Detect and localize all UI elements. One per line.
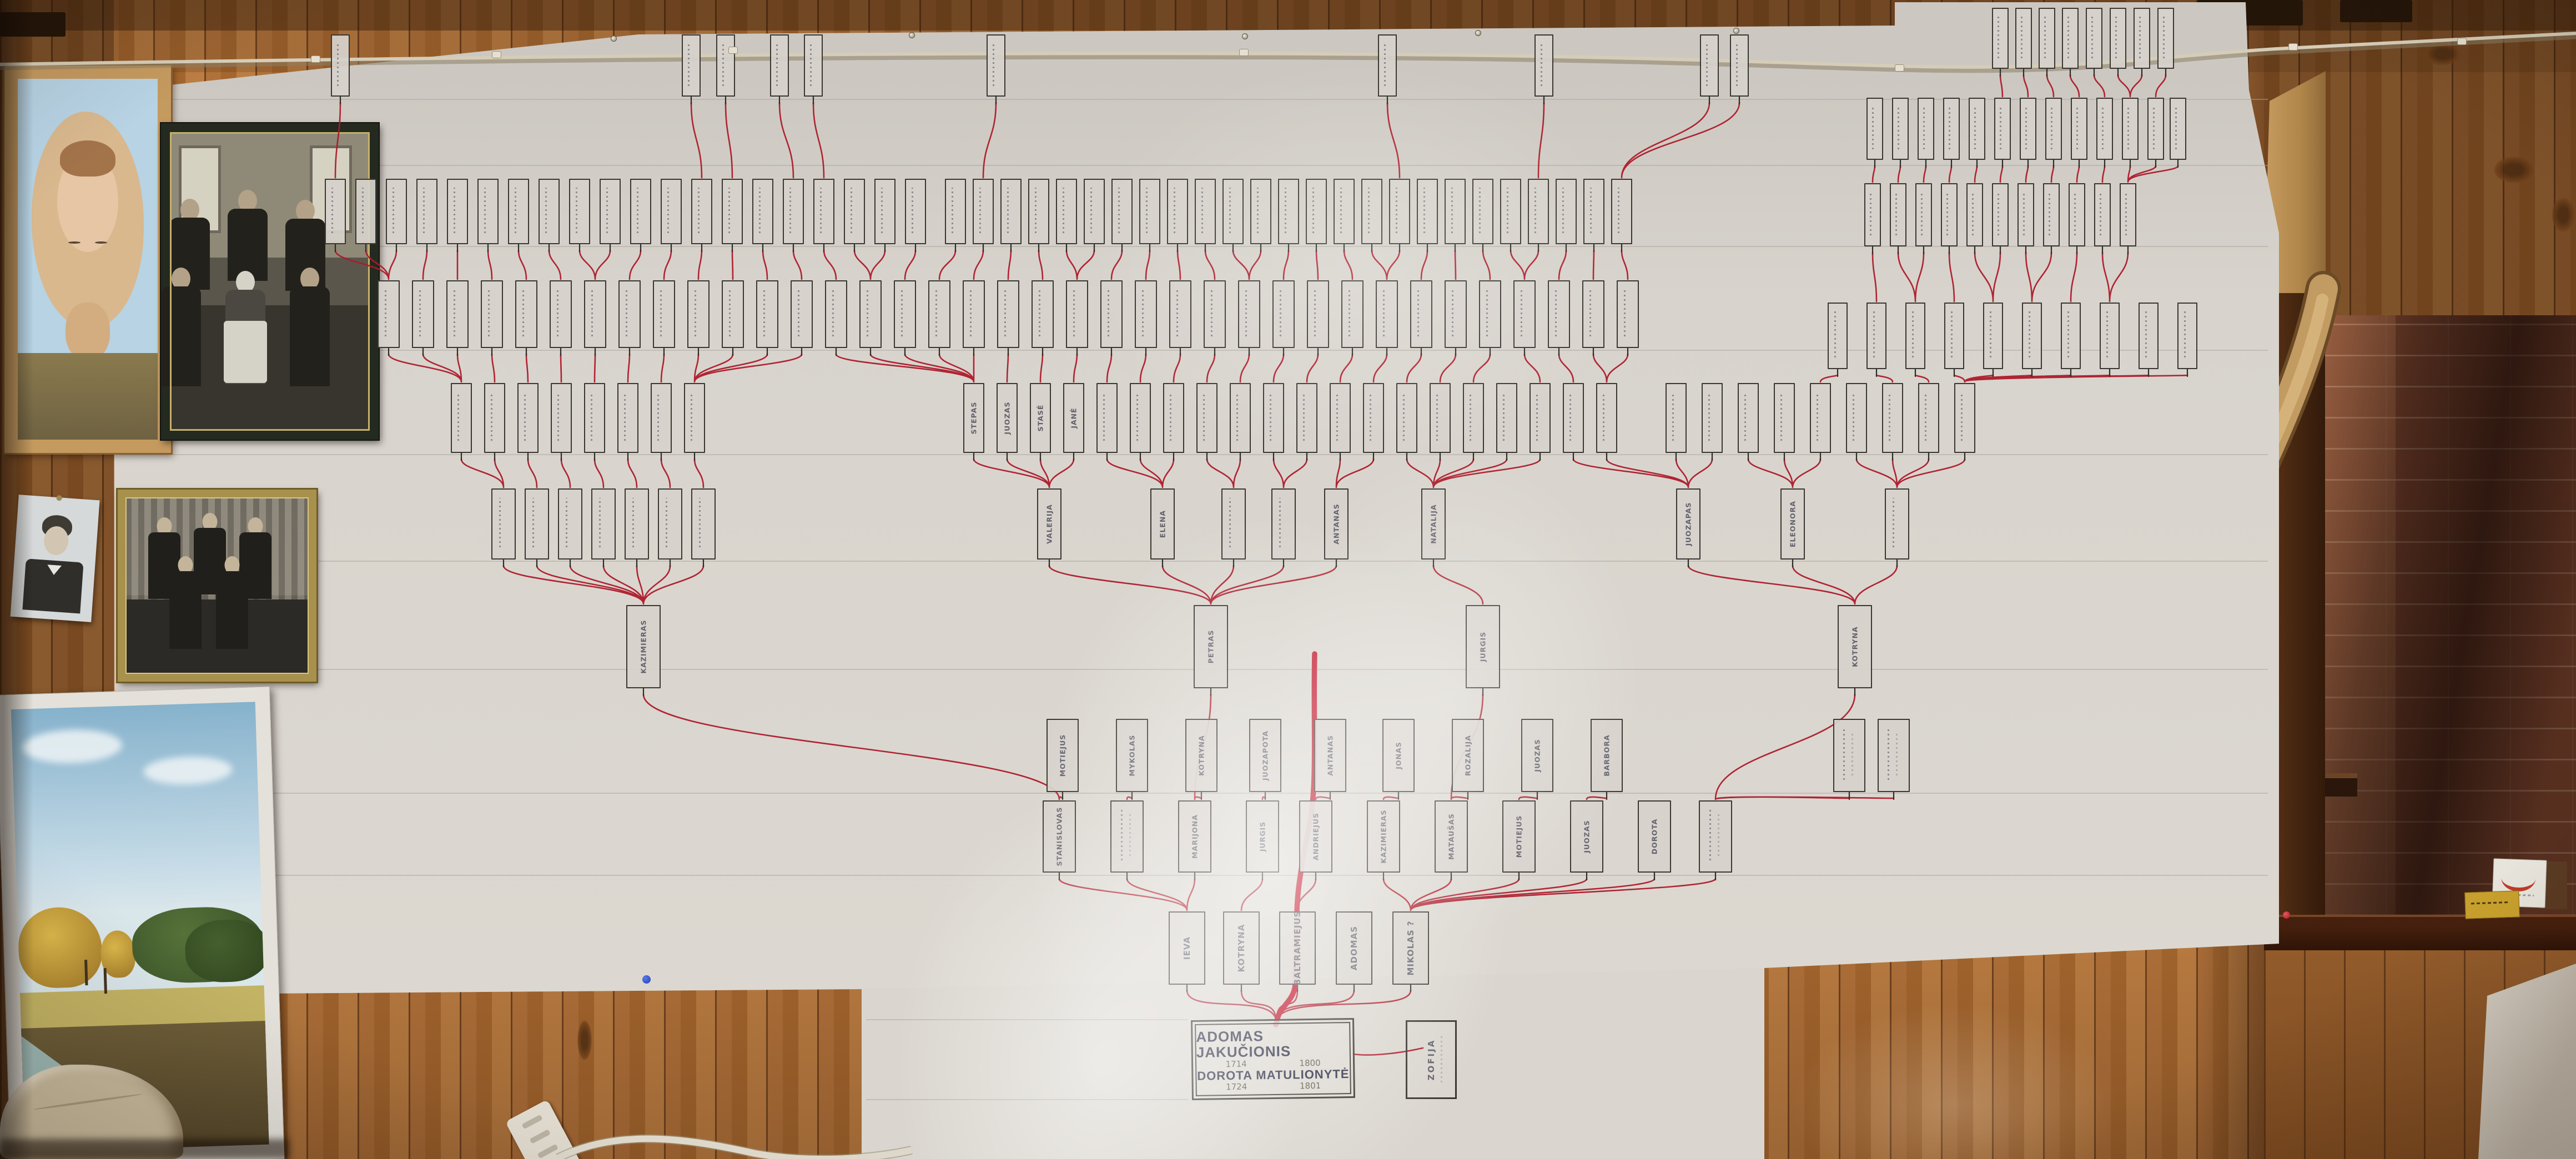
- person-box: [2039, 8, 2055, 69]
- person-box: [331, 34, 350, 97]
- person-box: [2134, 8, 2150, 69]
- person-box: [1966, 183, 1983, 246]
- person-box: [1969, 98, 1985, 160]
- person-box: [2015, 8, 2032, 69]
- person-box: [658, 488, 682, 560]
- person-box: [1341, 280, 1364, 348]
- person-box: [859, 280, 882, 348]
- person-box: [1130, 383, 1151, 453]
- person-box: [691, 488, 716, 560]
- person-box: [1163, 383, 1184, 453]
- person-box: [1885, 488, 1909, 560]
- person-box: [756, 280, 778, 348]
- person-box: [1110, 800, 1144, 873]
- person-box: [1666, 383, 1687, 453]
- person-box: ROZALIJA: [1452, 719, 1484, 792]
- person-box: [2094, 183, 2111, 246]
- person-box: [1890, 183, 1906, 246]
- person-box: JURGIS: [1246, 800, 1279, 873]
- cord-clip: [1895, 64, 1904, 72]
- metal-pin: [1242, 33, 1248, 39]
- blue-pin: [642, 975, 651, 984]
- person-box: [1230, 383, 1251, 453]
- person-box: [1306, 179, 1327, 244]
- person-box: JANĖ: [1063, 383, 1084, 453]
- person-box: [1135, 280, 1157, 348]
- person-box: [1892, 98, 1909, 160]
- person-box: [1221, 488, 1246, 560]
- room-scene: STEPASJUOZASSTASĖJANĖVALERIJAELENAANTANA…: [0, 0, 2576, 1159]
- framed-group-photo: [118, 490, 316, 682]
- person-box: [1330, 383, 1351, 453]
- person-box: [1954, 383, 1975, 453]
- person-box: [447, 179, 468, 244]
- red-pin: [2283, 911, 2290, 919]
- pencil-rule-line: [119, 561, 2268, 562]
- person-box: [1534, 34, 1553, 97]
- person-box: [1500, 179, 1521, 244]
- person-box: KOTRYNA: [1223, 911, 1260, 985]
- person-box: [1272, 280, 1295, 348]
- person-box: [825, 280, 847, 348]
- person-box: [1084, 179, 1105, 244]
- person-box: [945, 179, 966, 244]
- person-box: [1563, 383, 1584, 453]
- person-box: [2100, 303, 2120, 369]
- person-box: [1513, 280, 1536, 348]
- person-box: [1882, 383, 1903, 453]
- person-box: [2017, 183, 2034, 246]
- plank-knot: [2494, 157, 2534, 183]
- person-box: [325, 179, 346, 244]
- person-box: [1774, 383, 1795, 453]
- person-box: [1307, 280, 1329, 348]
- person-box: [2170, 98, 2186, 160]
- person-box: [1389, 179, 1410, 244]
- person-box: JUOZAS: [997, 383, 1018, 453]
- person-box: JURGIS: [1466, 605, 1500, 688]
- person-box: [973, 179, 994, 244]
- person-box: KAZIMIERAS: [1367, 800, 1400, 873]
- person-box: [1111, 179, 1133, 244]
- person-box: NATALIJA: [1421, 488, 1446, 560]
- person-box: [1994, 98, 2011, 160]
- person-box: [2043, 183, 2060, 246]
- person-box: JUOZAPAS: [1676, 488, 1700, 560]
- person-box: [1617, 280, 1639, 348]
- metal-pin: [611, 36, 617, 42]
- person-box: [551, 383, 572, 453]
- unframed-portrait-photo: [11, 495, 100, 622]
- person-box: BARBORA: [1591, 719, 1623, 792]
- metal-pin: [1475, 30, 1481, 36]
- person-box: JONAS: [1382, 719, 1415, 792]
- person-box: [1479, 280, 1501, 348]
- zofija-side-box: ZOFIJA: [1406, 1020, 1457, 1099]
- person-box: [1918, 98, 1934, 160]
- person-box: [2122, 98, 2139, 160]
- person-box: [1864, 183, 1881, 246]
- root-wife-name: DOROTA MATULIONYTĖ: [1197, 1067, 1350, 1083]
- person-box: [1846, 383, 1867, 453]
- person-box: [963, 280, 985, 348]
- person-box: [539, 179, 560, 244]
- brick-fireplace: [2323, 315, 2576, 916]
- shadow-object: [2340, 0, 2412, 22]
- person-box: [1611, 179, 1632, 244]
- person-box: [651, 383, 672, 453]
- person-box: [2071, 98, 2087, 160]
- person-box: MOTIEJUS: [1046, 719, 1079, 792]
- person-box: [515, 280, 537, 348]
- person-box: VALERIJA: [1037, 488, 1061, 560]
- person-box: [722, 280, 744, 348]
- person-box: [2096, 98, 2113, 160]
- pencil-rule-line: [866, 1099, 1188, 1100]
- person-box: [355, 179, 376, 244]
- metal-pin: [909, 32, 915, 38]
- cord-clip: [728, 47, 738, 54]
- person-box: STEPAS: [963, 383, 984, 453]
- person-box: [1378, 34, 1397, 97]
- person-box: [1066, 280, 1088, 348]
- person-box: [691, 179, 712, 244]
- person-box: [684, 383, 705, 453]
- person-box: [591, 488, 616, 560]
- person-box: [2020, 98, 2036, 160]
- person-box: MIKOLAS ?: [1392, 911, 1429, 985]
- person-box: [682, 34, 701, 97]
- person-box: [1195, 179, 1216, 244]
- pin-icon: [56, 495, 62, 501]
- pencil-rule-line: [866, 1019, 1188, 1020]
- person-box: [1738, 383, 1759, 453]
- person-box: [1528, 179, 1549, 244]
- person-box: ELEONORA: [1780, 488, 1805, 560]
- person-box: [1363, 383, 1384, 453]
- cord-clip: [2288, 43, 2298, 51]
- person-box: [2062, 8, 2079, 69]
- person-box: [2110, 8, 2126, 69]
- person-box: [1496, 383, 1517, 453]
- person-box: [752, 179, 773, 244]
- cord-clip: [311, 56, 320, 63]
- hair-fringe: [60, 140, 116, 177]
- person-box: [1918, 383, 1939, 453]
- person-box: [412, 280, 434, 348]
- person-box: [813, 179, 834, 244]
- person-box: [1271, 488, 1296, 560]
- scarf-knot: [66, 303, 110, 360]
- person-box: [1222, 179, 1244, 244]
- person-box: [1361, 179, 1382, 244]
- cord-clip: [492, 51, 501, 58]
- person-box: ELENA: [1150, 488, 1175, 560]
- person-box: [905, 179, 926, 244]
- person-box: [484, 383, 505, 453]
- mantel-shelf: [2264, 915, 2576, 950]
- person-box: [1700, 34, 1719, 97]
- person-box: [1100, 280, 1123, 348]
- person-box: [1866, 303, 1886, 369]
- small-yellow-box: [2464, 890, 2520, 919]
- person-box: [1000, 179, 1022, 244]
- person-box: [1730, 34, 1749, 97]
- person-box: [1878, 719, 1910, 792]
- person-box: [550, 280, 572, 348]
- person-box: [481, 280, 503, 348]
- person-box: [1702, 383, 1723, 453]
- person-box: ANTANAS: [1324, 488, 1349, 560]
- person-box: [584, 383, 605, 453]
- person-box: [584, 280, 606, 348]
- person-box: [2139, 303, 2159, 369]
- person-box: JUOZAS: [1521, 719, 1553, 792]
- person-box: [1463, 383, 1484, 453]
- person-box: [517, 383, 539, 453]
- person-box: [1582, 280, 1604, 348]
- person-box: [1296, 383, 1317, 453]
- person-box: [997, 280, 1019, 348]
- plank-knot: [577, 1020, 592, 1060]
- person-box: [1699, 800, 1732, 873]
- person-box: [1334, 179, 1355, 244]
- person-box: [2061, 303, 2081, 369]
- person-box: [1238, 280, 1260, 348]
- person-box: [1396, 383, 1417, 453]
- plank-knot: [2425, 42, 2461, 65]
- cord-clip: [1239, 49, 1249, 56]
- person-box: [1196, 383, 1217, 453]
- person-box: [894, 280, 916, 348]
- person-box: [617, 383, 638, 453]
- person-box: [1905, 303, 1925, 369]
- person-box: [1529, 383, 1551, 453]
- person-box: [804, 34, 823, 97]
- person-box: [987, 34, 1005, 97]
- person-box: [653, 280, 675, 348]
- person-box: [2157, 8, 2174, 69]
- person-box: [1472, 179, 1493, 244]
- person-box: [2086, 8, 2102, 69]
- person-box: [1944, 303, 1964, 369]
- person-box: MATAUŠAS: [1435, 800, 1468, 873]
- husband-birth-year: 1714: [1225, 1059, 1246, 1069]
- husband-death-year: 1800: [1299, 1058, 1320, 1067]
- pencil-rule-line: [119, 875, 2268, 876]
- person-box: [1056, 179, 1077, 244]
- person-box: [618, 280, 641, 348]
- person-box: [1430, 383, 1451, 453]
- person-box: ADOMAS: [1336, 911, 1372, 985]
- person-box: [1833, 719, 1865, 792]
- person-box: [1866, 98, 1883, 160]
- person-box: [1810, 383, 1831, 453]
- person-box: [491, 488, 516, 560]
- person-box: MARIJONA: [1178, 800, 1211, 873]
- person-box: [1169, 280, 1191, 348]
- person-box: [525, 488, 549, 560]
- framed-family-photo: [161, 123, 379, 440]
- metal-pin: [1733, 28, 1739, 34]
- root-husband-name: ADOMAS JAKUČIONIS: [1196, 1027, 1350, 1060]
- person-box: [1992, 183, 2009, 246]
- wife-birth-year: 1724: [1226, 1082, 1247, 1091]
- person-box: [625, 488, 649, 560]
- person-box: [1556, 179, 1577, 244]
- person-box: [508, 179, 529, 244]
- red-logo-icon: [2500, 875, 2535, 892]
- person-box: [378, 280, 400, 348]
- person-box: [386, 179, 407, 244]
- person-box: [1167, 179, 1188, 244]
- person-box: ANDRIEJUS: [1299, 800, 1332, 873]
- person-box: [1250, 179, 1271, 244]
- person-box: [1992, 8, 2009, 69]
- autumn-tree: [17, 906, 103, 989]
- person-box: [600, 179, 621, 244]
- person-box: [2147, 98, 2164, 160]
- dark-trees: [184, 919, 269, 984]
- person-box: [446, 280, 469, 348]
- cord-clip: [2457, 38, 2467, 45]
- person-box: [1943, 98, 1960, 160]
- person-box: [477, 179, 499, 244]
- person-box: STANISLOVAS: [1043, 800, 1076, 873]
- person-box: KOTRYNA: [1185, 719, 1217, 792]
- wife-death-year: 1801: [1300, 1081, 1321, 1090]
- person-box: [1583, 179, 1604, 244]
- person-box: [2177, 303, 2197, 369]
- person-box: [928, 280, 950, 348]
- person-box: [2069, 183, 2085, 246]
- person-box: [1445, 280, 1467, 348]
- person-box: [569, 179, 590, 244]
- person-box: [2120, 183, 2136, 246]
- person-box: IEVA: [1169, 911, 1205, 985]
- person-box: BALTRAMIEJUS: [1279, 911, 1316, 985]
- person-box: KAZIMIERAS: [626, 605, 661, 688]
- person-box: PETRAS: [1194, 605, 1228, 688]
- person-box: [791, 280, 813, 348]
- cloud: [143, 755, 233, 786]
- person-box: [1548, 280, 1570, 348]
- person-box: KOTRYNA: [1838, 605, 1872, 688]
- person-box: JUOZAS: [1570, 800, 1603, 873]
- person-box: [1204, 280, 1226, 348]
- person-box: [716, 34, 735, 97]
- person-box: MOTIEJUS: [1502, 800, 1536, 873]
- person-box: [722, 179, 743, 244]
- person-box: [630, 179, 651, 244]
- person-box: [416, 179, 437, 244]
- person-box: ANTANAS: [1314, 719, 1346, 792]
- person-box: [874, 179, 895, 244]
- plank-knot: [2552, 198, 2575, 232]
- person-box: STASĖ: [1030, 383, 1051, 453]
- person-box: [770, 34, 789, 97]
- person-box: [844, 179, 865, 244]
- person-box: [2045, 98, 2062, 160]
- person-box: [1376, 280, 1398, 348]
- person-box: [1828, 303, 1848, 369]
- person-box: [1263, 383, 1284, 453]
- person-box: DOROTA: [1638, 800, 1671, 873]
- person-box: [558, 488, 582, 560]
- person-box: [1445, 179, 1466, 244]
- person-box: [783, 179, 804, 244]
- pencil-rule-line: [119, 454, 2268, 455]
- framed-portrait-painting: [4, 65, 171, 453]
- shadow-object: [0, 12, 66, 37]
- person-box: [1417, 179, 1438, 244]
- person-box: [661, 179, 682, 244]
- person-box: MYKOLAS: [1116, 719, 1148, 792]
- zofija-label: ZOFIJA: [1426, 1039, 1436, 1081]
- person-box: [1278, 179, 1299, 244]
- person-box: [2022, 303, 2042, 369]
- person-box: [1941, 183, 1958, 246]
- person-box: [1596, 383, 1617, 453]
- pencil-rule-line: [119, 165, 2268, 166]
- person-box: [1032, 280, 1054, 348]
- person-box: JUOZAPOTA: [1249, 719, 1281, 792]
- shoulders: [18, 353, 158, 440]
- person-box: [1983, 303, 2003, 369]
- person-box: [1139, 179, 1160, 244]
- person-box: [451, 383, 472, 453]
- pencil-rule-line: [119, 793, 2268, 794]
- person-box: [1410, 280, 1432, 348]
- cloud: [22, 728, 123, 765]
- person-box: [687, 280, 710, 348]
- person-box: [1915, 183, 1932, 246]
- root-couple-title-box: ADOMAS JAKUČIONIS 1714 1800 DOROTA MATUL…: [1191, 1018, 1355, 1100]
- person-box: [1096, 383, 1118, 453]
- person-box: [1028, 179, 1049, 244]
